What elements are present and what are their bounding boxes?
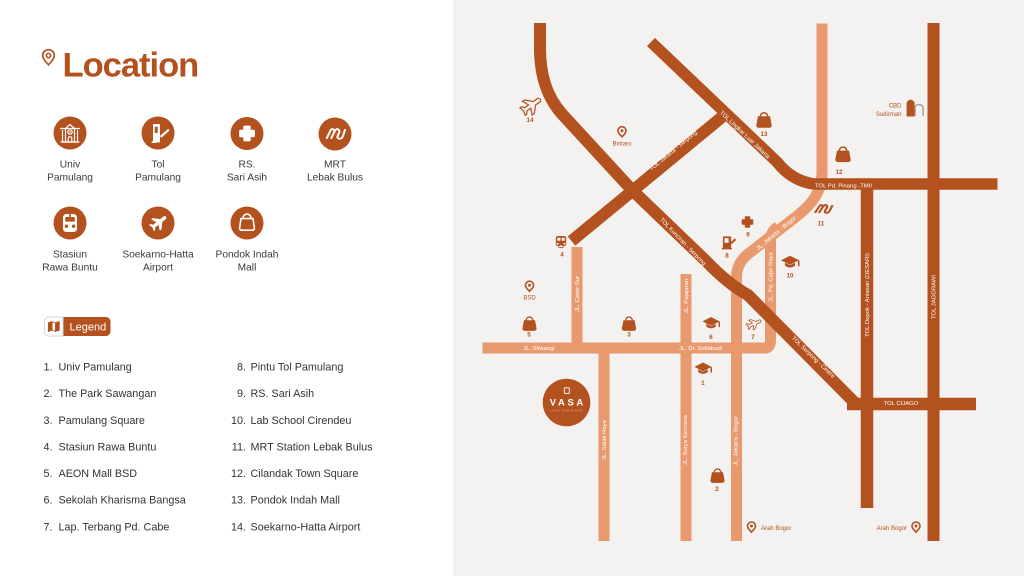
svg-text:Sekolah Kharisma Bangsa: Sekolah Kharisma Bangsa [59,495,186,507]
svg-text:2: 2 [715,486,719,493]
svg-text:JL. Surya Kencana: JL. Surya Kencana [683,414,689,464]
svg-text:RS.: RS. [239,160,256,171]
svg-text:Univ Pamulang: Univ Pamulang [59,362,132,374]
svg-text:Location: Location [63,47,199,85]
svg-text:Tol: Tol [151,160,164,171]
svg-text:11.: 11. [232,441,246,453]
svg-text:CBD: CBD [889,104,902,110]
svg-text:Soekarno-Hatta Airport: Soekarno-Hatta Airport [251,521,361,533]
svg-text:LUXE PAMULANG: LUXE PAMULANG [550,408,583,412]
svg-text:JL. Salak Raya: JL. Salak Raya [602,419,608,459]
svg-text:5.: 5. [43,468,52,480]
svg-text:TOL CIJAGO: TOL CIJAGO [884,401,919,407]
svg-text:Bintaro: Bintaro [612,142,632,148]
svg-text:JL. Sliwangi: JL. Sliwangi [523,346,554,352]
svg-text:Soekarno-Hatta: Soekarno-Hatta [122,250,194,261]
svg-text:Stasiun Rawa Buntu: Stasiun Rawa Buntu [59,441,157,453]
svg-text:Sudirman: Sudirman [876,112,902,118]
svg-text:Arah Bogor: Arah Bogor [761,526,791,532]
svg-text:JL. Pajajaran: JL. Pajajaran [684,279,690,313]
svg-text:8: 8 [725,253,729,260]
svg-text:1.: 1. [43,362,52,374]
svg-text:13: 13 [761,131,768,138]
svg-text:3: 3 [627,332,631,339]
svg-text:Legend: Legend [70,322,107,334]
svg-text:Pamulang Square: Pamulang Square [59,415,145,427]
svg-text:8.: 8. [237,362,246,374]
svg-text:Lebak Bulus: Lebak Bulus [307,173,363,184]
svg-text:14.: 14. [231,521,246,533]
svg-text:The Park Sawangan: The Park Sawangan [59,388,157,400]
svg-text:6.: 6. [43,495,52,507]
svg-text:Pamulang: Pamulang [47,173,93,184]
svg-text:Pondok Indah: Pondok Indah [216,250,279,261]
svg-text:Airport: Airport [143,263,173,274]
svg-text:7: 7 [751,334,755,341]
svg-text:6: 6 [709,334,713,341]
svg-text:Pintu Tol Pamulang: Pintu Tol Pamulang [251,362,344,374]
svg-text:12: 12 [836,169,843,176]
svg-text:5: 5 [527,332,531,339]
svg-text:3.: 3. [43,415,52,427]
svg-text:14: 14 [527,117,534,124]
svg-text:Stasiun: Stasiun [53,250,87,261]
svg-text:MRT Station Lebak Bulus: MRT Station Lebak Bulus [251,441,374,453]
svg-text:7.: 7. [43,521,52,533]
svg-text:BSD: BSD [523,296,536,302]
svg-text:Rawa Buntu: Rawa Buntu [42,263,98,274]
svg-text:AEON Mall BSD: AEON Mall BSD [59,468,138,480]
svg-text:TOL Pd. Pinang -TMII: TOL Pd. Pinang -TMII [815,184,872,190]
svg-text:4: 4 [560,252,564,259]
svg-text:RS. Sari Asih: RS. Sari Asih [251,388,315,400]
svg-text:Lab School Cirendeu: Lab School Cirendeu [251,415,352,427]
svg-text:2.: 2. [43,388,52,400]
svg-text:Pamulang: Pamulang [135,173,181,184]
svg-text:1: 1 [701,380,705,387]
svg-text:10.: 10. [231,415,246,427]
svg-text:Mall: Mall [238,263,257,274]
svg-text:12.: 12. [231,468,246,480]
svg-text:JL. Pd. Cabe Raya: JL. Pd. Cabe Raya [769,252,775,302]
svg-text:10: 10 [787,273,794,280]
svg-text:Sari Asih: Sari Asih [227,173,267,184]
svg-text:Pondok Indah Mall: Pondok Indah Mall [251,495,340,507]
svg-text:13.: 13. [231,495,246,507]
svg-text:JL. Dr. Setiabudi: JL. Dr. Setiabudi [679,346,722,352]
svg-text:TOL Depok - Antasari (DESARI): TOL Depok - Antasari (DESARI) [865,253,871,337]
svg-text:VASA: VASA [550,398,586,409]
svg-text:Lap. Terbang Pd. Cabe: Lap. Terbang Pd. Cabe [59,521,170,533]
svg-text:Cilandak Town Square: Cilandak Town Square [251,468,359,480]
svg-text:Arah Bogor: Arah Bogor [877,526,907,532]
svg-text:JL. Jakarta - Bogor: JL. Jakarta - Bogor [734,416,740,466]
svg-text:4.: 4. [43,441,52,453]
svg-text:MRT: MRT [324,160,346,171]
svg-text:11: 11 [818,221,825,228]
svg-text:Univ: Univ [60,160,81,171]
svg-text:9: 9 [746,232,750,239]
svg-text:JL. Ciater Sur: JL. Ciater Sur [575,276,581,312]
svg-text:TOL JAGORAWI: TOL JAGORAWI [932,275,938,319]
svg-text:9.: 9. [237,388,246,400]
